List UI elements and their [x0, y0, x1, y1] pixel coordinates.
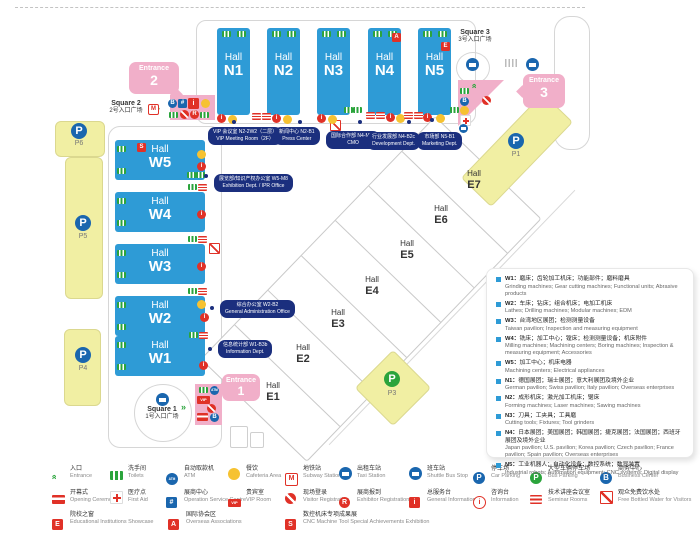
cnc-special-exhibition-icon: S — [285, 519, 296, 530]
toilets-icon — [117, 272, 126, 278]
facility-zh: 地铁站 — [303, 466, 341, 473]
seminar-rooms-icon — [404, 112, 413, 119]
legend-en: Industrial robots; Automation equipment;… — [505, 470, 678, 477]
facility-en: Information — [491, 497, 519, 504]
toilets-icon — [188, 236, 197, 242]
facility-en: Entrance — [70, 473, 92, 480]
toilets-icon — [117, 146, 126, 152]
bus-parking-icon: P — [384, 371, 400, 387]
educational-showcase-icon: E — [52, 519, 63, 530]
hall-n3: Hall N3 — [317, 28, 350, 115]
information-icon: i — [197, 210, 206, 219]
hall-label: Hall — [258, 382, 288, 391]
toilets-icon — [438, 31, 447, 37]
information-icon: i — [473, 496, 486, 509]
callout-vip-meeting-room: VIP 会议室 N2-2W2（二层） VIP Meeting Room（2F） — [208, 127, 282, 145]
hall-e1-label: Hall E1 — [258, 382, 288, 403]
legend-en: German pavilion; Swiss pavilion; Italy p… — [505, 385, 674, 392]
car-parking-icon: P — [75, 347, 91, 363]
toilets-icon — [110, 471, 123, 480]
operation-service-centre-icon: # — [166, 497, 177, 508]
facility-legend-row2: 开幕式Opening Ceremony 医疗点First Aid # 展商中心O… — [52, 490, 680, 509]
legend-code: W5： — [505, 360, 520, 366]
drinking-water-icon — [600, 491, 613, 504]
facility-en: Seminar Rooms — [548, 497, 590, 504]
cafeteria-icon — [201, 99, 210, 108]
bullet-icon — [496, 431, 501, 436]
callout-exhibition-dept: 展览部/知识产权办公室 W5-M8 Exhibition Dept. / IPR… — [214, 174, 293, 192]
toilets-icon — [187, 172, 196, 178]
toilets-icon — [117, 220, 126, 226]
hall-w4: Hall W4 — [115, 192, 205, 232]
parking-p5-label: P5 — [68, 233, 98, 240]
facility-en: VIP Room — [246, 497, 271, 504]
cafeteria-icon — [328, 115, 337, 124]
hall-e4-label: Hall E4 — [357, 276, 387, 297]
opening-ceremony-icon — [52, 495, 65, 504]
facility-operation-service-centre: # 展商中心Operation Service Centre — [166, 490, 228, 509]
legend-item-n5: N5：工业机器人；自动化设备；数控系统；数显装置 Industrial robo… — [496, 462, 684, 477]
bullet-icon — [496, 414, 501, 419]
drinking-water-icon — [209, 243, 220, 254]
legend-code: N1： — [505, 378, 518, 384]
seminar-rooms-icon — [262, 113, 271, 120]
atm-icon: ATM — [166, 473, 178, 485]
toilets-icon — [169, 112, 178, 118]
general-information-icon: i — [188, 98, 199, 109]
facility-zh: 贵宾室 — [246, 490, 271, 497]
square-name-zh: 3号入口广场 — [446, 37, 504, 44]
facility-zh: 观众免费饮水处 — [618, 490, 691, 497]
toilets-icon — [237, 31, 246, 37]
callout-en: Information Dept. — [223, 349, 267, 356]
bullet-icon — [496, 361, 501, 366]
callout-general-administration: 综合办公室 W2-B2 General Administration Offic… — [220, 300, 295, 318]
hall-code: E6 — [426, 214, 456, 227]
bullet-icon — [496, 463, 501, 468]
seminar-rooms-icon — [198, 184, 207, 191]
overseas-associations-icon: A — [168, 519, 179, 530]
toilets-icon — [353, 107, 362, 113]
callout-development-dept: 行业发展部 N4-B2c Development Dept. — [367, 132, 420, 150]
seminar-rooms-icon — [198, 288, 207, 295]
legend-item-w4: W4：铣床；加工中心；镗床；检测测量设备；机床附件 Milling machin… — [496, 336, 684, 358]
seminar-rooms-icon — [414, 112, 423, 119]
information-icon: i — [200, 313, 209, 322]
toilets-icon — [337, 31, 346, 37]
hall-label: Hall — [426, 205, 456, 214]
bullet-icon — [496, 277, 501, 282]
facility-en: Exhibitor Registration — [357, 497, 409, 504]
legend-en: Cutting tools; Fixtures; Tool grinders — [505, 420, 594, 427]
facility-exhibitor-registration: R 展商报到Exhibitor Registration — [339, 490, 409, 509]
toilets-icon — [189, 332, 198, 338]
facility-toilets: 洗手间Toilets — [110, 466, 166, 486]
legend-en: Grinding machines; Gear cutting machines… — [505, 284, 684, 298]
cafeteria-icon — [197, 150, 206, 159]
vip-room-icon: VIP — [228, 499, 241, 507]
cnc-special-exhibition-icon: S — [137, 143, 146, 152]
visitor-registration-icon — [482, 96, 491, 105]
subway-station-icon: M — [285, 473, 298, 486]
car-parking-icon: P — [71, 123, 87, 139]
facility-en: Overseas Associations — [186, 519, 242, 526]
facility-drinking-water: 观众免费饮水处Free Bottled Water for Visitors — [600, 490, 680, 509]
facility-visitor-registration: 现场登录Visitor Registration — [285, 490, 339, 509]
legend-en: Milling machines; Machining centers; Bor… — [505, 343, 684, 357]
entrance-arrows-icon: » — [50, 475, 59, 479]
facility-shuttle-bus: 班车站Shuttle Bus Stop — [409, 466, 473, 486]
legend-item-w3: W3：台湾地区展团；检测测量设备 Taiwan pavilion; Inspec… — [496, 318, 684, 333]
facility-en: First Aid — [128, 497, 148, 504]
hall-e6-label: Hall E6 — [426, 205, 456, 226]
toilets-icon — [117, 324, 126, 330]
toilets-icon — [222, 31, 231, 37]
toilets-icon — [188, 288, 197, 294]
facility-legend-row3: E 院校之窗Educational Institutions Showcase … — [52, 512, 545, 531]
legend-zh: 车床；钻床；组合机床；电加工机床 — [520, 301, 613, 307]
hall-code: W4 — [115, 207, 205, 223]
hall-w1: Hall W1 — [115, 336, 205, 376]
facility-vip-room: VIP 贵宾室VIP Room — [228, 490, 285, 509]
visitor-registration-icon — [207, 404, 216, 413]
square-name-zh: 2号入口广场 — [104, 108, 148, 115]
callout-en: Exhibition Dept. / IPR Office — [219, 183, 288, 190]
facility-zh: 入口 — [70, 466, 92, 473]
hall-n1: Hall N1 — [217, 28, 250, 115]
facility-en: Educational Institutions Showcase — [70, 519, 153, 526]
facility-en: CNC Machine Tool Special Achievements Ex… — [303, 519, 429, 526]
hall-label: Hall — [392, 240, 422, 249]
cafeteria-icon — [283, 115, 292, 124]
facility-zh: 展商报到 — [357, 490, 409, 497]
legend-zh: 加工中心；机床电器 — [520, 360, 572, 366]
cafeteria-icon — [460, 106, 469, 115]
hall-code: W3 — [115, 259, 205, 275]
entrance-arrows-icon: » — [470, 84, 479, 88]
shuttle-bus-icon — [409, 467, 422, 480]
facility-zh: 班车站 — [427, 466, 468, 473]
hall-code: E1 — [258, 391, 288, 404]
legend-code: W2： — [505, 301, 520, 307]
legend-zh: 德国展团；瑞士展团；意大利展团及境外企业 — [518, 378, 634, 384]
subway-station-icon: M — [148, 104, 159, 115]
facility-zh: 总服务台 — [427, 490, 476, 497]
service-building — [250, 432, 264, 448]
opening-ceremony-icon — [197, 413, 208, 421]
hall-content-legend: W1：磨床；齿轮加工机床；功能部件；磨料磨具 Grinding machines… — [486, 268, 694, 458]
seminar-rooms-icon — [376, 112, 385, 119]
bullet-icon — [496, 379, 501, 384]
entrance-2-tag: Entrance 2 — [129, 62, 179, 94]
facility-cnc-special-exhibition: S 数控机床专项成果展CNC Machine Tool Special Achi… — [285, 512, 545, 531]
facility-first-aid: 医疗点First Aid — [110, 490, 166, 509]
facility-general-information: i 总服务台General Information — [409, 490, 473, 509]
information-icon: i — [199, 361, 208, 370]
toilets-icon — [373, 31, 382, 37]
callout-dot — [210, 306, 214, 310]
entrance-number: 2 — [129, 73, 179, 88]
legend-zh: 工业机器人；自动化设备；数控系统；数显装置 — [518, 462, 640, 468]
facility-en: Subway Station — [303, 473, 341, 480]
information-icon: i — [197, 162, 206, 171]
car-parking-icon: P — [508, 133, 524, 149]
callout-en: Marketing Dept. — [422, 141, 457, 148]
parking-p3-label: P3 — [382, 390, 402, 397]
parking-p6-label: P6 — [64, 140, 94, 147]
legend-code: W4： — [505, 336, 520, 342]
overseas-associations-icon: A — [392, 33, 401, 42]
callout-zh: 展览部/知识产权办公室 W5-M8 — [219, 176, 288, 183]
callout-zh: 综合办公室 W2-B2 — [225, 302, 290, 309]
facility-cafeteria: 餐饮Cafeteria Area — [228, 466, 285, 486]
facility-atm: ATM 自动取款机ATM — [166, 466, 228, 486]
hall-code: N1 — [217, 63, 250, 80]
shuttle-bus-icon — [526, 58, 539, 71]
entrance-number: 3 — [523, 85, 565, 100]
facility-zh: 餐饮 — [246, 466, 281, 473]
callout-dot — [298, 120, 302, 124]
business-center-icon: B — [460, 97, 469, 106]
hall-e3-label: Hall E3 — [323, 309, 353, 330]
operation-service-centre-icon: # — [178, 99, 187, 108]
legend-zh: 刀具；工夹具；工具磨 — [518, 413, 576, 419]
information-icon: i — [197, 262, 206, 271]
facility-zh: 洗手间 — [128, 466, 146, 473]
hall-code: E5 — [392, 249, 422, 262]
hall-label: Hall — [357, 276, 387, 285]
legend-item-n4: N4：日本展团；美国展团；韩国展团；捷克展团；法国展团；西班牙展团及境外企业 J… — [496, 430, 684, 459]
facility-en: Cafeteria Area — [246, 473, 281, 480]
hall-code: W1 — [115, 351, 205, 367]
legend-zh: 磨床；齿轮加工机床；功能部件；磨料磨具 — [520, 276, 630, 282]
information-icon: i — [217, 114, 226, 123]
hall-label: Hall — [288, 344, 318, 353]
legend-zh: 台湾地区展团；检测测量设备 — [520, 318, 595, 324]
information-icon: i — [317, 114, 326, 123]
legend-code: W3： — [505, 318, 520, 324]
hall-code: N5 — [418, 63, 451, 80]
facility-information: i 咨询台Information — [473, 490, 530, 509]
cafeteria-icon — [197, 300, 206, 309]
facility-subway: M 地铁站Subway Station — [285, 466, 339, 486]
callout-dot — [232, 120, 236, 124]
exhibitor-registration-icon: R — [190, 110, 199, 119]
toilets-icon — [199, 387, 208, 393]
hall-e7-label: Hall E7 — [459, 170, 489, 191]
vip-room-icon: VIP — [197, 396, 210, 404]
hall-code: E7 — [459, 179, 489, 192]
toilets-icon — [423, 31, 432, 37]
hall-label: Hall — [323, 309, 353, 318]
service-building — [230, 426, 248, 448]
callout-zh: VIP 会议室 N2-2W2（二层） — [213, 129, 277, 136]
boundary-dashed-line — [15, 7, 585, 8]
facility-educational-showcase: E 院校之窗Educational Institutions Showcase — [52, 512, 168, 531]
callout-en: Development Dept. — [372, 141, 415, 148]
hall-w2: Hall W2 — [115, 296, 205, 336]
legend-code: N2： — [505, 395, 518, 401]
callout-en: General Administration Office — [225, 309, 290, 316]
callout-dot — [358, 120, 362, 124]
legend-code: N5： — [505, 462, 518, 468]
facility-taxi: 出租车站Taxi Station — [339, 466, 409, 486]
callout-information-dept: 信息统计部 W1-B3b Information Dept. — [218, 340, 272, 358]
toilets-icon — [344, 107, 353, 113]
toilets-icon — [188, 184, 197, 190]
hall-code: E4 — [357, 285, 387, 298]
callout-zh: 信息统计部 W1-B3b — [223, 342, 267, 349]
general-information-icon: i — [409, 497, 420, 508]
cafeteria-icon — [228, 468, 240, 480]
hall-code: W2 — [115, 311, 205, 327]
toilets-icon — [200, 112, 209, 118]
crosswalk — [505, 59, 518, 67]
legend-en: Lathes; Drilling machines; Modular machi… — [505, 308, 632, 315]
callout-dot — [430, 118, 434, 122]
entrance-3-tag: Entrance 3 — [523, 74, 565, 108]
hall-w3: Hall W3 — [115, 244, 205, 284]
toilets-icon — [117, 364, 126, 370]
car-parking-icon: P — [75, 215, 91, 231]
parking-p1-label: P1 — [506, 151, 526, 158]
entrance-arrows-icon: » — [181, 403, 185, 412]
first-aid-icon — [110, 491, 123, 504]
toilets-icon — [117, 342, 126, 348]
legend-item-n2: N2：成形机床；激光加工机床；锯床 Forming machines; Lase… — [496, 395, 684, 410]
callout-press-center: 新闻中心 N2-B1 Press Center — [274, 127, 320, 145]
callout-zh: 新闻中心 N2-B1 — [279, 129, 315, 136]
visitor-registration-icon — [180, 110, 189, 119]
educational-showcase-icon: E — [441, 42, 450, 51]
facility-zh: 医疗点 — [128, 490, 148, 497]
toilets-icon — [322, 31, 331, 37]
legend-zh: 日本展团；美国展团；韩国展团；捷克展团；法国展团；西班牙展团及境外企业 — [505, 430, 681, 444]
information-icon: i — [272, 114, 281, 123]
legend-item-n3: N3：刀具；工夹具；工具磨 Cutting tools; Fixtures; T… — [496, 413, 684, 428]
facility-zh: 数控机床专项成果展 — [303, 512, 429, 519]
toilets-icon — [117, 250, 126, 256]
facility-en: General Information — [427, 497, 476, 504]
legend-code: N3： — [505, 413, 518, 419]
legend-item-w2: W2：车床；钻床；组合机床；电加工机床 Lathes; Drilling mac… — [496, 301, 684, 316]
taxi-station-icon — [339, 467, 352, 480]
facility-seminar-rooms: 技术讲座会议室Seminar Rooms — [530, 490, 600, 509]
seminar-rooms-icon — [366, 112, 375, 119]
legend-en: Japan pavilion; U.S. pavilion; Korea pav… — [505, 445, 684, 459]
taxi-station-icon — [156, 393, 169, 406]
hall-e5-label: Hall E5 — [392, 240, 422, 261]
legend-item-w1: W1：磨床；齿轮加工机床；功能部件；磨料磨具 Grinding machines… — [496, 276, 684, 298]
bullet-icon — [496, 337, 501, 342]
seminar-rooms-icon — [198, 236, 207, 243]
facility-zh: 咨询台 — [491, 490, 519, 497]
facility-en: Toilets — [128, 473, 146, 480]
hall-code: N2 — [267, 63, 300, 80]
cafeteria-icon — [436, 114, 445, 123]
legend-item-n1: N1：德国展团；瑞士展团；意大利展团及境外企业 German pavilion;… — [496, 378, 684, 393]
hall-code: W5 — [115, 155, 205, 171]
legend-code: N4： — [505, 430, 518, 436]
hall-e2-label: Hall E2 — [288, 344, 318, 365]
hall-code: E2 — [288, 353, 318, 366]
hall-code: E3 — [323, 318, 353, 331]
toilets-icon — [460, 88, 469, 94]
shuttle-bus-icon — [459, 124, 468, 133]
entrance-1-tag: Entrance 1 — [222, 374, 260, 401]
seminar-rooms-icon — [199, 332, 208, 339]
bullet-icon — [496, 396, 501, 401]
bullet-icon — [496, 319, 501, 324]
square-2-label: Square 2 2号入口广场 — [104, 100, 148, 116]
information-icon: i — [386, 113, 395, 122]
legend-zh: 成形机床；激光加工机床；锯床 — [518, 395, 599, 401]
bullet-icon — [496, 302, 501, 307]
facility-en: Free Bottled Water for Visitors — [618, 497, 691, 504]
toilets-icon — [272, 31, 281, 37]
facility-zh: 技术讲座会议室 — [548, 490, 590, 497]
taxi-station-icon — [466, 58, 479, 71]
seminar-rooms-icon — [252, 113, 261, 120]
legend-zh: 铣床；加工中心；镗床；检测测量设备；机床附件 — [520, 336, 648, 342]
exhibition-floor-plan: P P1 P P3 P P6 P P5 P P4 Hall N1 Hall N2… — [0, 0, 700, 546]
facility-zh: 院校之窗 — [70, 512, 153, 519]
hall-label: Hall — [459, 170, 489, 179]
toilets-icon — [287, 31, 296, 37]
callout-marketing-dept: 市场部 N5-B1 Marketing Dept. — [417, 132, 462, 150]
legend-item-w5: W5：加工中心；机床电器 Machining centers; Electric… — [496, 360, 684, 375]
facility-zh: 出租车站 — [357, 466, 385, 473]
facility-en: Taxi Station — [357, 473, 385, 480]
facility-en: Shuttle Bus Stop — [427, 473, 468, 480]
hall-code: N3 — [317, 63, 350, 80]
legend-en: Machining centers; Electrical appliances — [505, 368, 605, 375]
toilets-icon — [117, 198, 126, 204]
facility-zh: 国际协会区 — [186, 512, 242, 519]
callout-dot — [407, 120, 411, 124]
seminar-rooms-icon — [530, 495, 542, 504]
callout-en: Press Center — [279, 136, 315, 143]
square-name-zh: 1号入口广场 — [134, 414, 190, 421]
entrance-number: 1 — [222, 385, 260, 398]
legend-code: W1： — [505, 276, 520, 282]
hall-code: N4 — [368, 63, 401, 80]
visitor-registration-icon — [285, 493, 296, 504]
facility-en: ATM — [184, 473, 214, 480]
legend-en: Forming machines; Laser machines; Sawing… — [505, 403, 641, 410]
business-center-icon: B — [210, 413, 219, 422]
toilets-icon — [117, 302, 126, 308]
car-parking-icon: P — [473, 472, 485, 484]
callout-dot — [204, 174, 208, 178]
toilets-icon — [450, 107, 459, 113]
facility-opening-ceremony: 开幕式Opening Ceremony — [52, 490, 110, 509]
facility-overseas-associations: A 国际协会区Overseas Associations — [168, 512, 285, 531]
callout-zh: 市场部 N5-B1 — [422, 134, 457, 141]
callout-dot — [208, 347, 212, 351]
callout-zh: 行业发展部 N4-B2c — [372, 134, 415, 141]
square-3-label: Square 3 3号入口广场 — [446, 29, 504, 45]
callout-en: VIP Meeting Room（2F） — [213, 136, 277, 143]
legend-en: Taiwan pavilion; Inspection and measurin… — [505, 326, 638, 333]
facility-entrance: » 入口Entrance — [52, 466, 110, 486]
toilets-icon — [117, 168, 126, 174]
exhibitor-registration-icon: R — [339, 497, 350, 508]
parking-p4-label: P4 — [68, 365, 98, 372]
hall-n2: Hall N2 — [267, 28, 300, 115]
facility-zh: 自动取款机 — [184, 466, 214, 473]
